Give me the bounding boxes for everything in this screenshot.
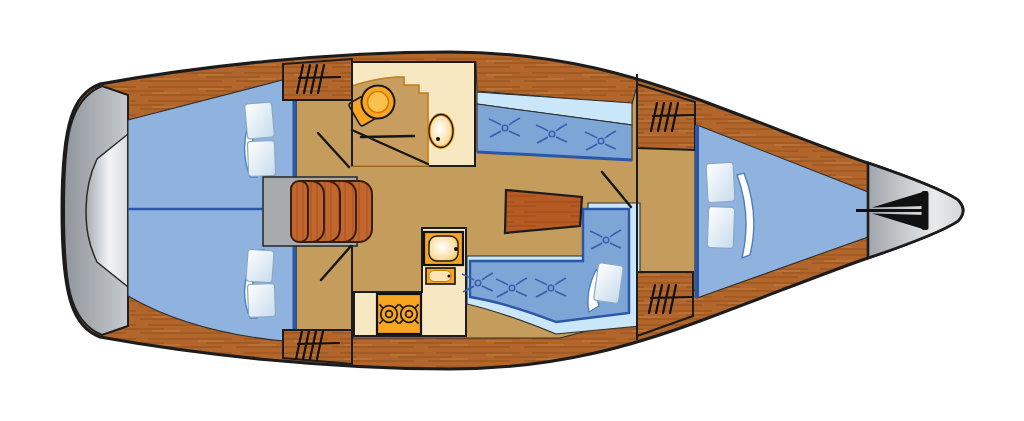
pillow	[245, 102, 275, 139]
stern-transom	[64, 86, 128, 335]
deck-hatch-aft-bottom	[283, 330, 352, 364]
pillow	[593, 263, 623, 304]
washbasin	[429, 115, 453, 148]
step-treads	[291, 181, 372, 242]
pillow	[247, 141, 275, 177]
floorplan-canvas	[0, 0, 1024, 421]
pillow	[246, 249, 274, 283]
stove	[377, 294, 421, 334]
head-compartment	[346, 62, 475, 166]
aft-bottom-bedding	[245, 249, 276, 318]
yacht-floorplan-svg	[0, 0, 1024, 421]
deck-hatch-aft-top	[283, 59, 352, 100]
bow-anchor-locker	[856, 163, 963, 258]
companionway-steps	[263, 177, 372, 246]
saloon-table	[505, 190, 582, 233]
pillow	[707, 207, 734, 249]
settee-top	[477, 92, 632, 160]
pillow	[247, 284, 275, 318]
galley-sink	[424, 232, 463, 265]
pillow	[706, 162, 735, 202]
galley-icebox	[426, 268, 455, 284]
